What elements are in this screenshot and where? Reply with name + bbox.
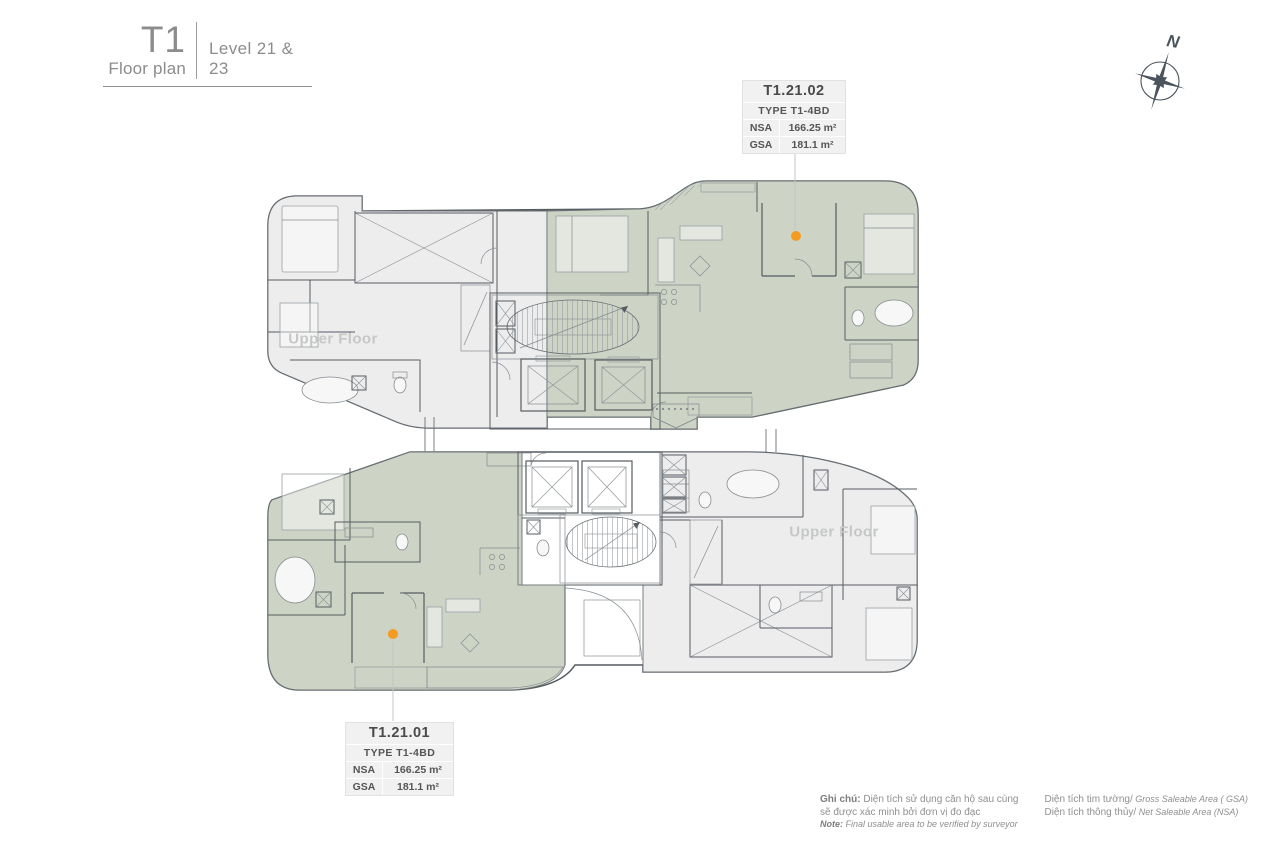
gsa-definition-vn: Diện tích tim tường/ <box>1044 794 1132 805</box>
unit-marker-t1-21-01 <box>388 629 398 639</box>
gsa-value: 181.1 m² <box>383 779 453 795</box>
stair-top <box>507 300 639 354</box>
compass: N <box>1122 26 1204 118</box>
footnote-right: Diện tích tim tường/ Gross Saleable Area… <box>1044 793 1248 831</box>
level-label: Level 21 & 23 <box>196 22 312 79</box>
unit-marker-t1-21-02 <box>791 231 801 241</box>
unit-card-t1-21-02: T1.21.02 TYPE T1-4BD NSA 166.25 m² GSA 1… <box>742 80 846 154</box>
gsa-label: GSA <box>346 779 383 795</box>
upper-floor-label-top: Upper Floor <box>288 331 377 348</box>
gsa-value: 181.1 m² <box>780 137 845 153</box>
unit-type: TYPE T1-4BD <box>743 103 845 120</box>
compass-rose-icon <box>1126 45 1193 118</box>
nsa-definition-vn: Diện tích thông thủy/ <box>1044 807 1136 818</box>
note-label: Note: <box>820 819 843 829</box>
nsa-label: NSA <box>743 120 780 136</box>
title-block: T1 Floor plan Level 21 & 23 <box>103 22 312 87</box>
north-label: N <box>1165 31 1181 52</box>
footnotes: Ghi chú: Diện tích sử dụng căn hộ sau cù… <box>820 793 1248 831</box>
nsa-value: 166.25 m² <box>383 762 453 778</box>
floor-plan-page: T1 Floor plan Level 21 & 23 N T1.21.02 T… <box>0 0 1275 864</box>
floor-plan-label: Floor plan <box>103 59 186 79</box>
gsa-label: GSA <box>743 137 780 153</box>
nsa-label: NSA <box>346 762 383 778</box>
unit-type: TYPE T1-4BD <box>346 745 453 762</box>
gsa-definition-en: Gross Saleable Area ( GSA) <box>1133 794 1248 804</box>
unit-card-t1-21-01: T1.21.01 TYPE T1-4BD NSA 166.25 m² GSA 1… <box>345 722 454 796</box>
footnote-left: Ghi chú: Diện tích sử dụng căn hộ sau cù… <box>820 793 1018 831</box>
unit-id: T1.21.02 <box>743 81 845 103</box>
floor-plan-svg <box>0 0 1275 864</box>
tower-name: T1 <box>103 22 186 58</box>
unit-id: T1.21.01 <box>346 723 453 745</box>
nsa-value: 166.25 m² <box>780 120 845 136</box>
ghi-chu-label: Ghi chú: <box>820 794 861 805</box>
nsa-definition-en: Net Saleable Area (NSA) <box>1136 807 1238 817</box>
upper-floor-label-bottom: Upper Floor <box>789 524 878 541</box>
bottom-wing <box>268 452 917 690</box>
